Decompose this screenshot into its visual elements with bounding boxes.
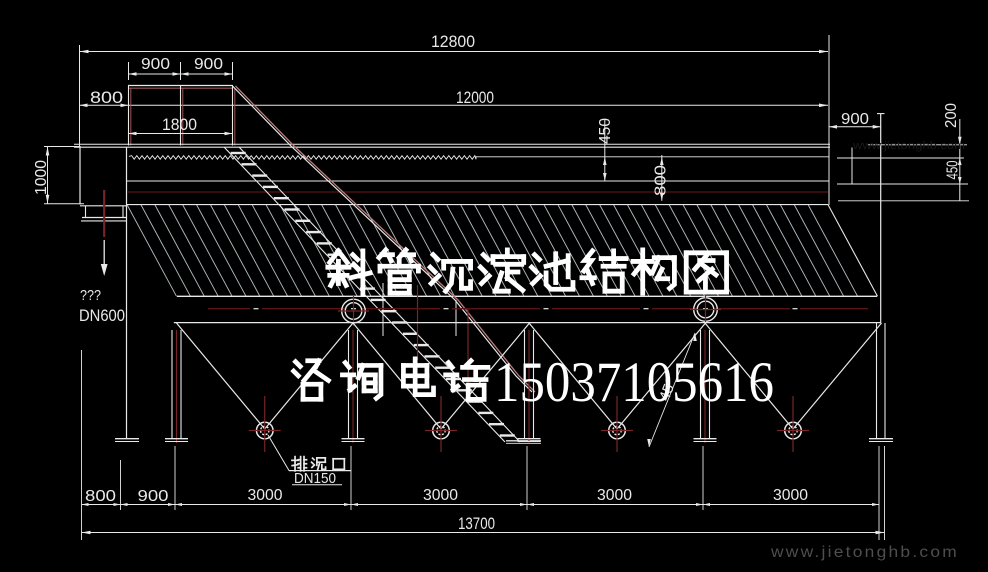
svg-text:800: 800 bbox=[90, 89, 123, 107]
svg-text:3000: 3000 bbox=[248, 487, 283, 504]
svg-text:DN600: DN600 bbox=[79, 307, 125, 325]
svg-text:DN150: DN150 bbox=[294, 471, 336, 487]
svg-text:3000: 3000 bbox=[597, 487, 632, 504]
svg-text:900: 900 bbox=[138, 488, 169, 505]
svg-text:12800: 12800 bbox=[431, 32, 475, 51]
svg-text:900: 900 bbox=[841, 111, 869, 128]
svg-text:15037105616: 15037105616 bbox=[494, 351, 774, 414]
svg-text:900: 900 bbox=[141, 56, 170, 73]
svg-text:www.jietonghb.com: www.jietonghb.com bbox=[770, 544, 959, 561]
svg-text:1800: 1800 bbox=[162, 116, 197, 134]
svg-text:3000: 3000 bbox=[423, 487, 458, 504]
svg-text:800: 800 bbox=[85, 488, 116, 505]
svg-text:450: 450 bbox=[945, 160, 962, 179]
svg-text:200: 200 bbox=[943, 103, 960, 128]
svg-text:450: 450 bbox=[597, 118, 614, 144]
svg-text:www.jietonghb.com: www.jietonghb.com bbox=[852, 140, 965, 152]
svg-text:13700: 13700 bbox=[458, 515, 495, 533]
svg-text:1000: 1000 bbox=[33, 160, 50, 195]
svg-text:???: ??? bbox=[80, 287, 101, 304]
svg-text:900: 900 bbox=[194, 56, 223, 73]
svg-text:800: 800 bbox=[653, 165, 670, 196]
svg-text:12000: 12000 bbox=[456, 88, 494, 107]
svg-text:3000: 3000 bbox=[773, 487, 808, 504]
